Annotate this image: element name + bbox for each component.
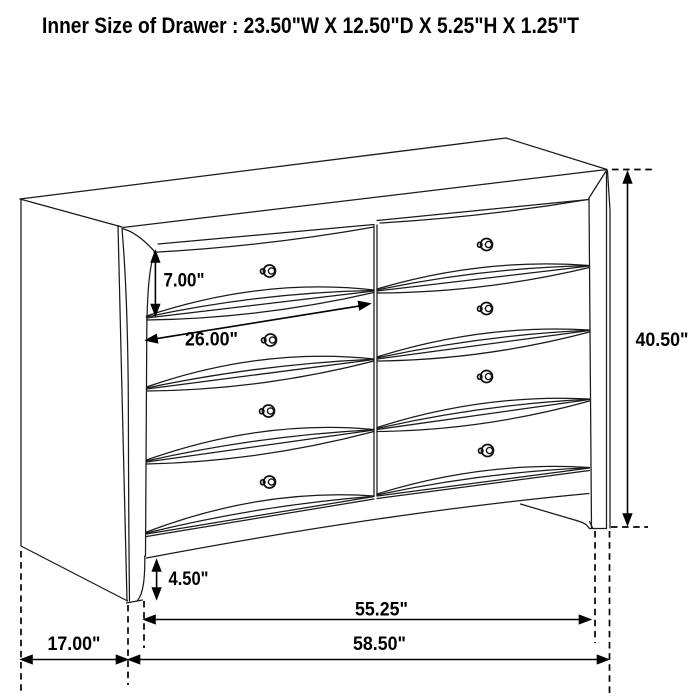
svg-text:Inner Size of Drawer : 23.50"W: Inner Size of Drawer : 23.50"W X 12.50"D… xyxy=(42,13,580,38)
svg-text:4.50": 4.50" xyxy=(169,568,209,590)
svg-text:58.50": 58.50" xyxy=(353,633,406,655)
svg-text:26.00": 26.00" xyxy=(185,329,238,351)
svg-text:17.00": 17.00" xyxy=(48,633,101,655)
svg-text:55.25": 55.25" xyxy=(355,599,408,621)
svg-text:40.50": 40.50" xyxy=(636,329,689,351)
svg-text:7.00": 7.00" xyxy=(164,270,205,292)
